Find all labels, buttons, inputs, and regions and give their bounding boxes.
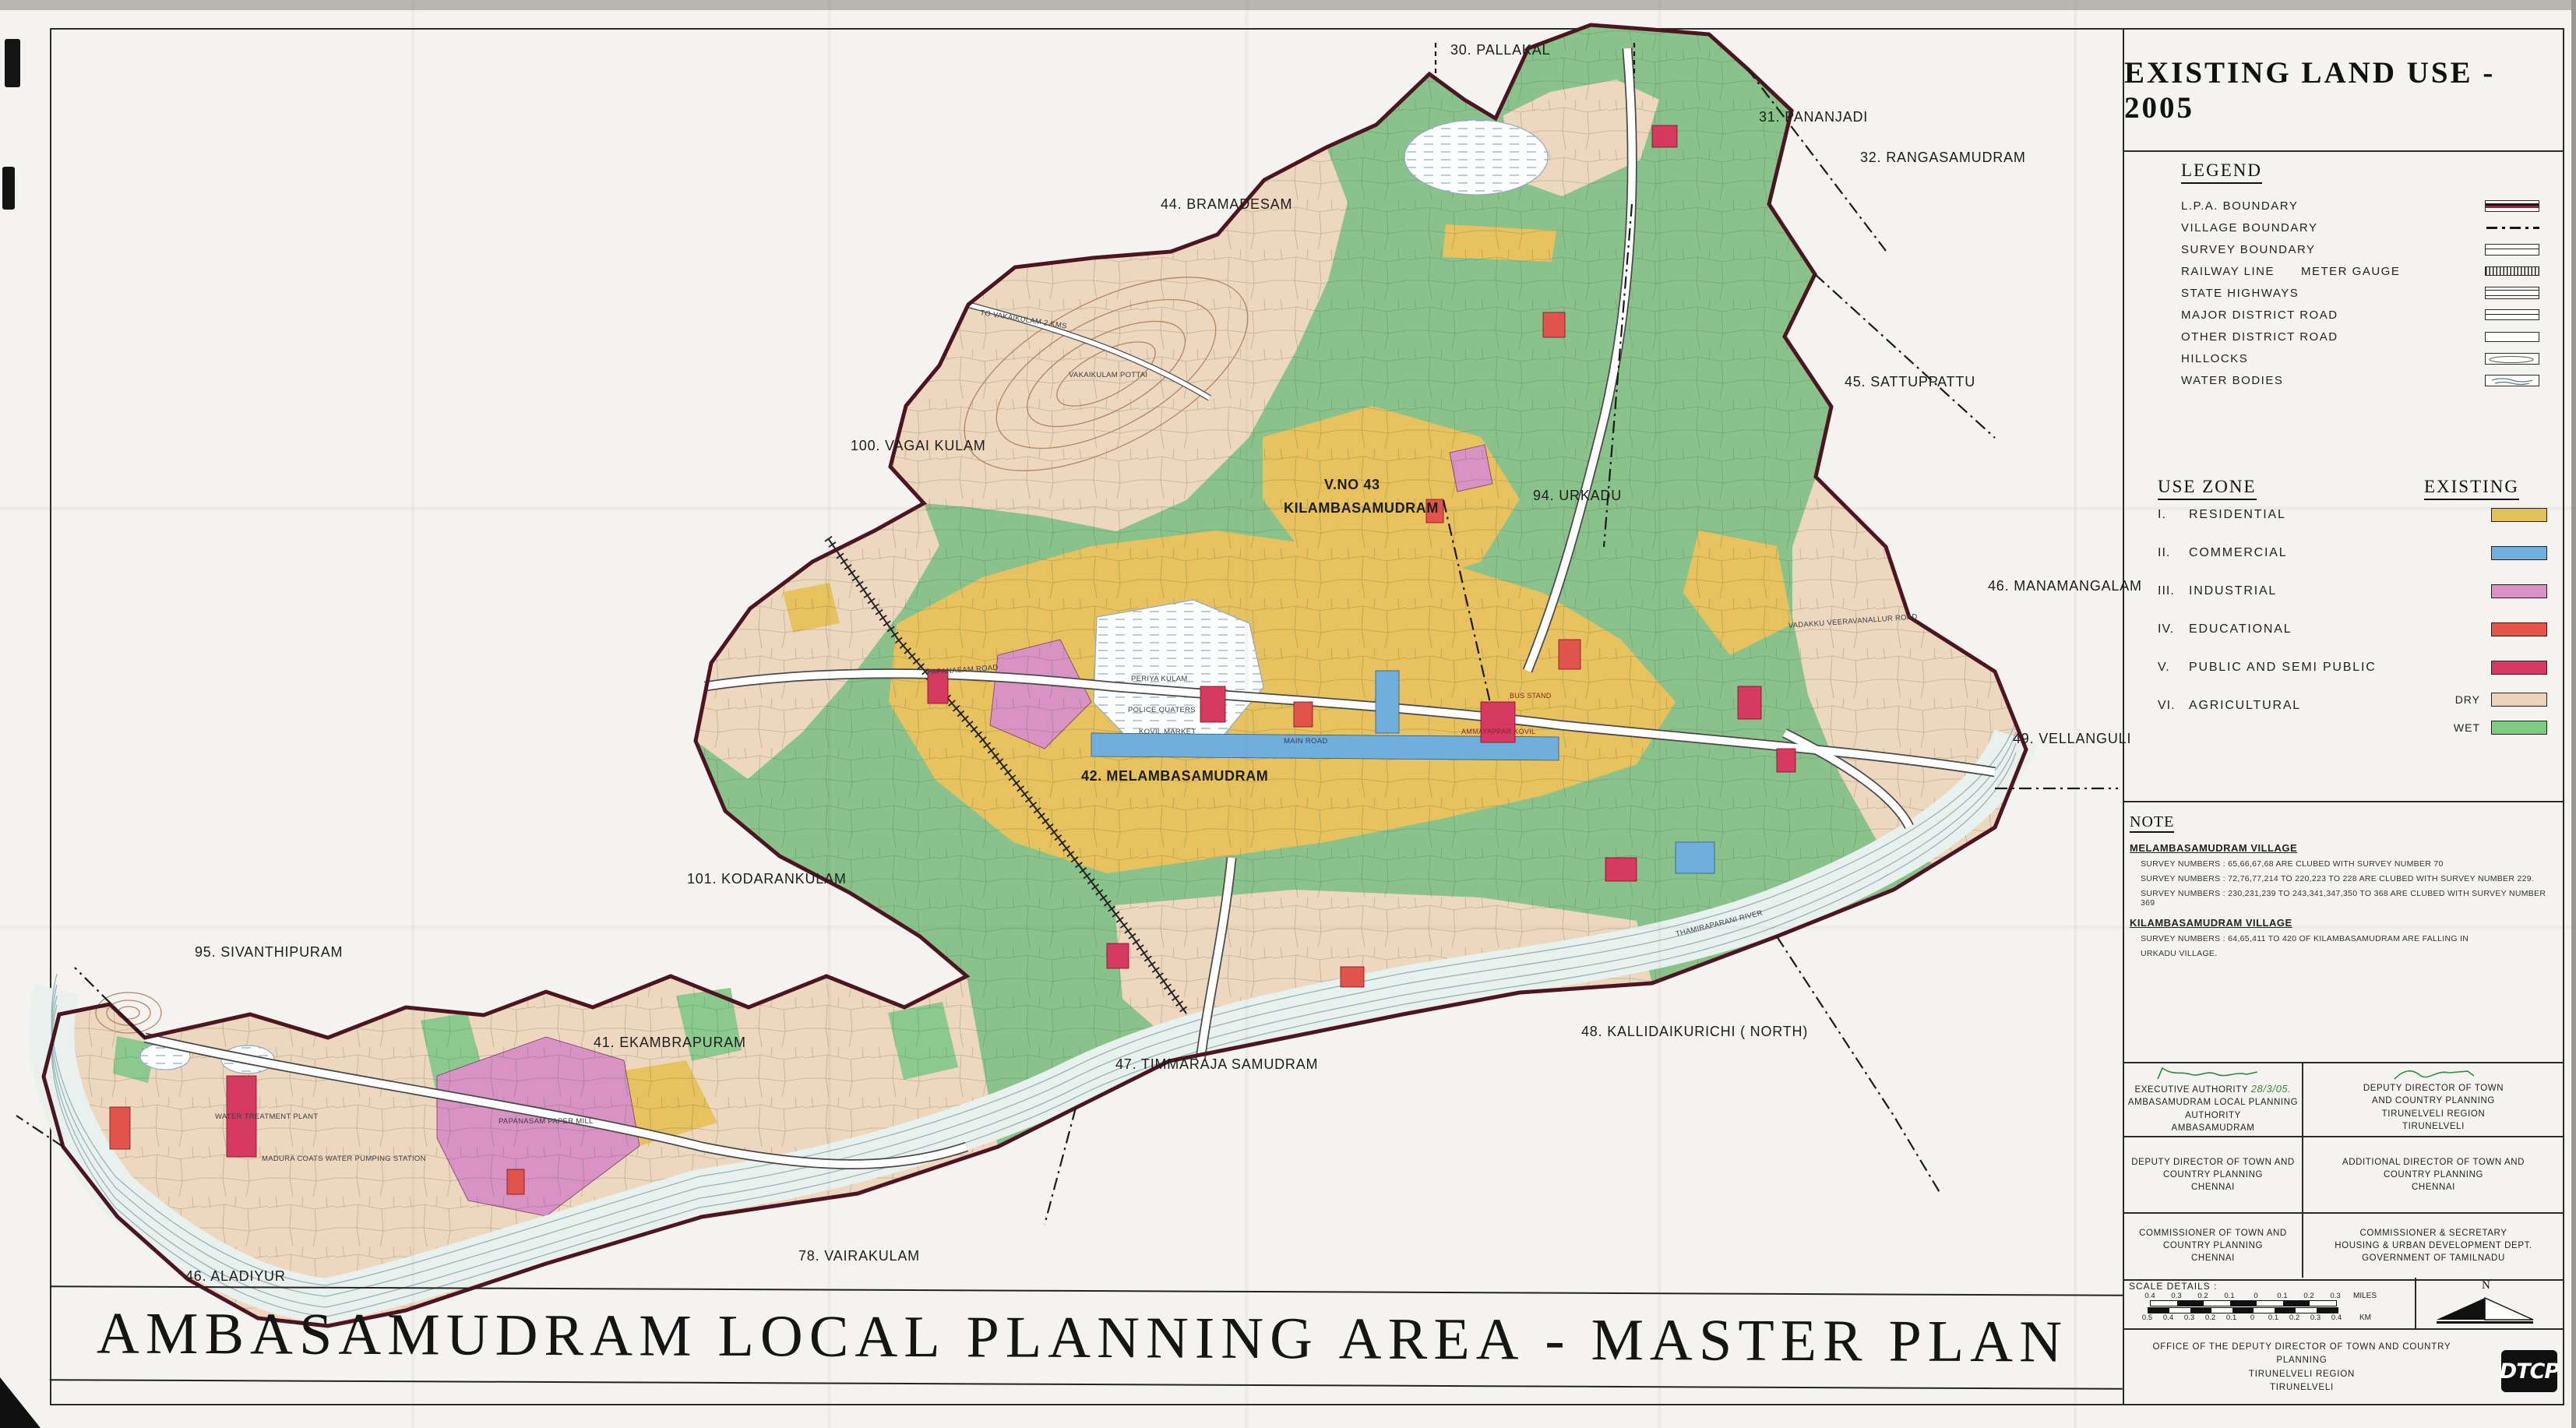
village-boundary-symbol (2486, 223, 2539, 233)
dtcp-logo: DTCP (2503, 1352, 2556, 1391)
note-line: SURVEY NUMBERS : 65,66,67,68 ARE CLUBED … (2141, 859, 2557, 869)
label-rangasamudram: 32. RANGASAMUDRAM (1860, 150, 2026, 165)
signature-commissioner-chennai: COMMISSIONER OF TOWN AND COUNTRY PLANNIN… (2126, 1215, 2300, 1276)
label-sattuppattu: 45. SATTUPPATTU (1845, 374, 1975, 390)
scale-bar-miles (2150, 1300, 2337, 1306)
railway-symbol (2485, 266, 2539, 276)
office-line: TIRUNELVELI REGION (2130, 1368, 2473, 1381)
legend-heading: LEGEND (2181, 160, 2262, 184)
banner-title: AMBASAMUDRAM LOCAL PLANNING AREA - MASTE… (50, 1285, 2123, 1390)
existing-heading: EXISTING (2424, 477, 2519, 500)
industrial-swatch (2491, 584, 2547, 598)
signature-grid-hline2 (2123, 1212, 2564, 1214)
label-vairakulam: 78. VAIRAKULAM (798, 1248, 920, 1264)
label-madura-coats: MADURA COATS WATER PUMPING STATION (262, 1155, 426, 1163)
note-divider-line (2124, 801, 2563, 802)
legend-item-railway: RAILWAY LINE METER GAUGE (2181, 260, 2539, 282)
educational-swatch (2491, 622, 2547, 636)
signature-deputy-director-tirunelveli: DEPUTY DIRECTOR OF TOWN AND COUNTRY PLAN… (2305, 1065, 2562, 1134)
commercial-swatch (2491, 546, 2547, 560)
label-vakaikulam-pottai: VAKAIKULAM POTTAI (1069, 371, 1147, 379)
label-kovil-market: KOVIL MARKET (1139, 728, 1196, 736)
note-village2-heading: KILAMBASAMUDRAM VILLAGE (2130, 917, 2557, 929)
label-kilambasamudram: KILAMBASAMUDRAM (1284, 500, 1439, 516)
legend-item-major-district-road: MAJOR DISTRICT ROAD (2181, 304, 2539, 326)
residential-swatch (2491, 508, 2547, 522)
label-manamangalam: 46. MANAMANGALAM (1988, 578, 2142, 594)
label-water-treatment-plant: WATER TREATMENT PLANT (215, 1112, 318, 1121)
note-line: SURVEY NUMBERS : 72,76,77,214 TO 220,223… (2141, 874, 2557, 883)
use-zone-industrial: III. INDUSTRIAL (2158, 584, 2547, 598)
scale-bar: 0.40.30.20.100.10.20.3 MILES 0.50.40.30.… (2137, 1292, 2394, 1322)
label-pallakal: 30. PALLAKAL (1450, 42, 1550, 58)
water-bodies-symbol (2485, 375, 2539, 386)
label-ekambrapuram: 41. EKAMBRAPURAM (594, 1035, 746, 1050)
lpa-boundary-symbol (2485, 200, 2539, 212)
label-timmaraja-samudram: 47. TIMMARAJA SAMUDRAM (1115, 1056, 1318, 1072)
label-melambasamudram: 42. MELAMBASAMUDRAM (1081, 768, 1268, 784)
label-vellanguli: 49. VELLANGULI (2013, 731, 2131, 746)
label-sivanthipuram: 95. SIVANTHIPURAM (195, 944, 343, 960)
label-urkadu: 94. URKADU (1533, 488, 1622, 503)
signature-date: 28/3/05. (2251, 1083, 2292, 1095)
agricultural-wet-swatch (2491, 721, 2547, 735)
use-zone-section: USE ZONE EXISTING I. RESIDENTIAL II. COM… (2158, 477, 2547, 749)
signature-scribble (2387, 1067, 2480, 1082)
note-line: SURVEY NUMBERS : 64,65,411 TO 420 OF KIL… (2141, 934, 2557, 943)
note-line: SURVEY NUMBERS : 230,231,239 TO 243,341,… (2141, 889, 2557, 908)
scale-heading: SCALE DETAILS : (2129, 1281, 2217, 1292)
use-zone-public: V. PUBLIC AND SEMI PUBLIC (2158, 661, 2547, 675)
legend-item-state-highways: STATE HIGHWAYS (2181, 282, 2539, 304)
label-aladiyur: 46. ALADIYUR (185, 1268, 286, 1284)
legend-item-survey-boundary: SURVEY BOUNDARY (2181, 238, 2539, 260)
scale-vline (2415, 1278, 2416, 1328)
use-zone-commercial: II. COMMERCIAL (2158, 546, 2547, 560)
signature-grid-vline (2302, 1062, 2303, 1278)
label-papanasam-paper-mill: PAPANASAM PAPER MILL (499, 1117, 594, 1126)
north-arrow: N (2430, 1279, 2547, 1326)
note-section: NOTE MELAMBASAMUDRAM VILLAGE SURVEY NUMB… (2130, 813, 2557, 958)
label-ammayappar-kovil: AMMAYAPPAR KOVIL (1461, 728, 1535, 735)
miles-unit: MILES (2349, 1292, 2391, 1300)
note-line: URKADU VILLAGE. (2141, 949, 2557, 958)
public-semi-public-swatch (2491, 661, 2547, 675)
label-main-road: MAIN ROAD (1284, 737, 1328, 746)
scale-miles-labels: 0.40.30.20.100.10.20.3 MILES (2137, 1292, 2394, 1300)
label-pananjadi: 31. PANANJADI (1759, 109, 1868, 125)
signature-scribble (2155, 1065, 2271, 1082)
use-zone-heading: USE ZONE (2158, 477, 2257, 500)
label-police-quaters: POLICE QUATERS (1128, 706, 1196, 714)
label-kodarankulam: 101. KODARANKULAM (687, 871, 847, 887)
label-vagai-kulam: 100. VAGAI KULAM (851, 438, 986, 453)
state-highway-symbol (2485, 287, 2539, 299)
km-unit: KM (2347, 1313, 2380, 1322)
label-bramadesam: 44. BRAMADESAM (1161, 196, 1292, 212)
note-village1-heading: MELAMBASAMUDRAM VILLAGE (2130, 842, 2557, 854)
signature-grid-hline1 (2123, 1136, 2564, 1137)
legend-item-lpa-boundary: L.P.A. BOUNDARY (2181, 195, 2539, 217)
label-periya-kulam: PERIYA KULAM (1131, 675, 1188, 683)
label-bus-stand: BUS STAND (1510, 692, 1552, 700)
major-district-road-symbol (2485, 309, 2539, 320)
office-section: OFFICE OF THE DEPUTY DIRECTOR OF TOWN AN… (2123, 1330, 2564, 1404)
signature-deputy-director-chennai: DEPUTY DIRECTOR OF TOWN AND COUNTRY PLAN… (2126, 1139, 2300, 1211)
title-block: EXISTING LAND USE - 2005 (2124, 30, 2563, 152)
scale-section: SCALE DETAILS : 0.40.30.20.100.10.20.3 M… (2123, 1278, 2564, 1328)
agricultural-wet-row: WET (2158, 721, 2547, 735)
legend-item-hillocks: HILLOCKS (2181, 347, 2539, 369)
signature-executive-authority: EXECUTIVE AUTHORITY 28/3/05. AMBASAMUDRA… (2126, 1065, 2300, 1134)
signature-additional-director-chennai: ADDITIONAL DIRECTOR OF TOWN AND COUNTRY … (2305, 1139, 2562, 1211)
scale-km-labels: 0.50.40.30.20.100.10.20.30.4 KM (2137, 1313, 2394, 1322)
legend-list: L.P.A. BOUNDARY VILLAGE BOUNDARY SURVEY … (2181, 195, 2539, 391)
agricultural-dry-swatch (2491, 693, 2547, 707)
legend-item-water-bodies: WATER BODIES (2181, 369, 2539, 391)
office-line: TIRUNELVELI (2130, 1381, 2473, 1395)
legend-section: LEGEND L.P.A. BOUNDARY VILLAGE BOUNDARY … (2181, 160, 2539, 391)
other-district-road-symbol (2485, 332, 2539, 342)
use-zone-educational: IV. EDUCATIONAL (2158, 622, 2547, 636)
legend-item-village-boundary: VILLAGE BOUNDARY (2181, 217, 2539, 238)
scale-bar-km (2148, 1307, 2338, 1313)
legend-item-other-district-road: OTHER DISTRICT ROAD (2181, 326, 2539, 347)
note-heading: NOTE (2130, 813, 2174, 833)
signature-commissioner-secretary: COMMISSIONER & SECRETARY HOUSING & URBAN… (2305, 1215, 2562, 1276)
label-vno43: V.NO 43 (1324, 477, 1380, 492)
label-kallidaikurichi: 48. KALLIDAIKURICHI ( NORTH) (1581, 1024, 1808, 1039)
hillocks-symbol (2485, 353, 2539, 365)
office-line: OFFICE OF THE DEPUTY DIRECTOR OF TOWN AN… (2130, 1341, 2473, 1368)
map-title: EXISTING LAND USE - 2005 (2124, 55, 2563, 125)
use-zone-residential: I. RESIDENTIAL (2158, 508, 2547, 522)
survey-boundary-symbol (2485, 244, 2539, 256)
